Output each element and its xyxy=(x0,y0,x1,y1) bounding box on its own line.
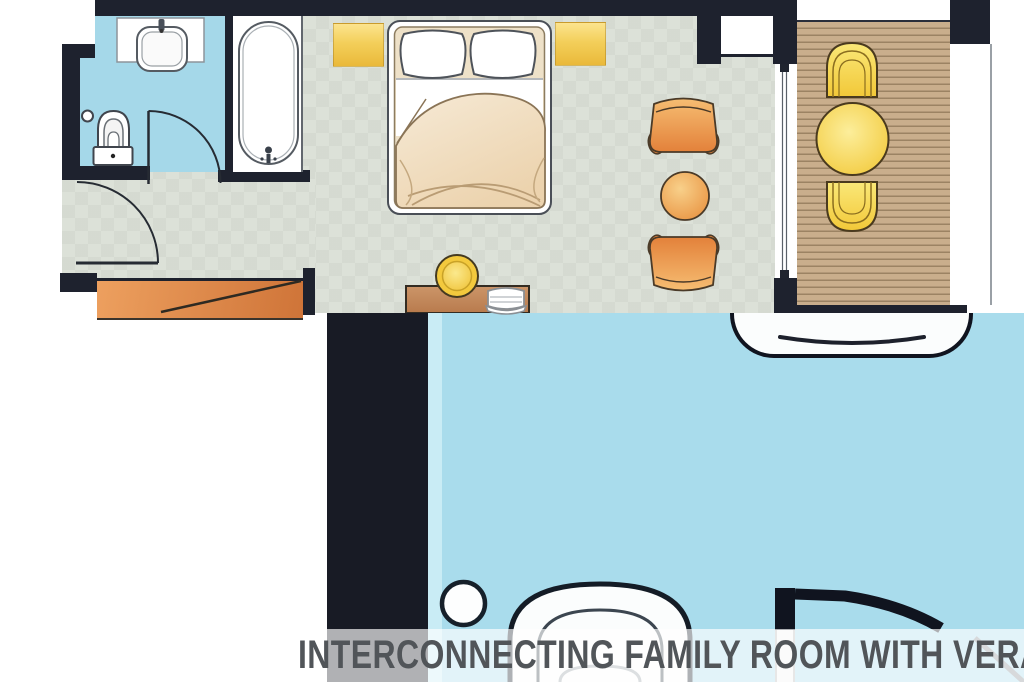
double-bed xyxy=(388,21,551,214)
closeup-spotlight xyxy=(442,582,485,625)
entry-door xyxy=(76,182,158,263)
stool xyxy=(436,255,478,297)
armchair-bottom xyxy=(646,234,720,291)
plan-title: INTERCONNECTING FAMILY ROOM WITH VERANDA xyxy=(196,633,1024,678)
veranda-chair-bottom xyxy=(827,182,877,231)
floorplan-image: INTERCONNECTING FAMILY ROOM WITH VERANDA xyxy=(0,0,1024,682)
plan-title-text: INTERCONNECTING FAMILY ROOM WITH VERANDA xyxy=(298,633,1024,678)
side-table xyxy=(661,172,709,220)
armchair-top xyxy=(646,99,720,156)
veranda-table xyxy=(817,103,889,175)
fixtures-overlay xyxy=(0,0,1024,682)
washbasin xyxy=(117,18,204,71)
closeup-tub-inner-line xyxy=(780,337,924,343)
desk-chair xyxy=(486,288,526,314)
sliding-door-rails xyxy=(780,64,789,278)
wardrobe-door-line xyxy=(161,281,301,312)
bathtub xyxy=(239,22,298,164)
veranda-chair-top xyxy=(827,43,877,97)
bathroom-door xyxy=(149,111,221,184)
toilet xyxy=(82,111,133,166)
